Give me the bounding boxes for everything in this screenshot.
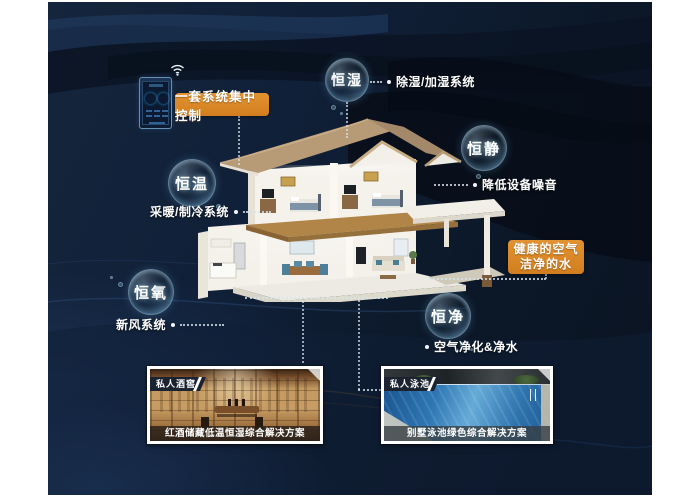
healthy-air-line1: 健康的空气: [513, 242, 578, 257]
connector-healthy-badge-h: [430, 278, 546, 280]
connector-house-to-pool-photo: [358, 297, 360, 390]
thermostat-dial-right: [158, 93, 169, 104]
bubble-temperature-label: 恒温: [175, 173, 209, 194]
wine-cellar-photo: 私人酒窖 红酒储藏低温恒湿综合解决方案: [147, 366, 323, 444]
bubble-temperature: 恒温: [168, 159, 216, 207]
connector-dot: [425, 345, 429, 349]
connector-dot: [387, 80, 391, 84]
mini-bubble: [340, 112, 343, 115]
bubble-oxygen-label: 恒氧: [134, 282, 168, 303]
connector-dot: [171, 323, 175, 327]
smart-home-infographic: 一套系统集中控制 健康的空气 洁净的水 恒湿 恒静 恒温 恒氧 恒净 除湿/加湿…: [48, 2, 652, 495]
callout-purity-system: 空气净化&净水: [420, 338, 518, 355]
central-control-badge-label: 一套系统集中控制: [175, 86, 269, 124]
bubble-humidity-label: 恒湿: [331, 70, 363, 90]
corner-fold: [538, 369, 550, 381]
callout-humidity-system: 除湿/加湿系统: [370, 73, 475, 90]
house-upper-floor: [246, 159, 458, 242]
pool-photo: 私人泳池 别墅泳池绿色综合解决方案: [381, 366, 553, 444]
pool-photo-caption: 别墅泳池绿色综合解决方案: [384, 426, 550, 441]
connector-house-to-wine-photo: [302, 297, 304, 363]
callout-temperature-text: 采暖/制冷系统: [150, 203, 229, 220]
healthy-air-line2: 洁净的水: [520, 257, 572, 272]
bubble-quiet: 恒静: [461, 125, 507, 171]
bubble-quiet-label: 恒静: [467, 138, 501, 159]
callout-quiet-text: 降低设备噪音: [482, 176, 557, 193]
callout-temperature-system: 采暖/制冷系统: [150, 203, 271, 220]
phone-screen: [142, 81, 169, 125]
healthy-air-badge: 健康的空气 洁净的水: [508, 240, 584, 274]
bubble-purity: 恒净: [425, 293, 471, 339]
mini-bubble: [110, 276, 113, 279]
callout-quiet-system: 降低设备噪音: [434, 176, 557, 193]
connector-to-pool-photo: [358, 389, 381, 391]
connector-under-house: [245, 297, 388, 299]
callout-purity-text: 空气净化&净水: [434, 338, 518, 355]
bubble-humidity: 恒湿: [325, 58, 369, 102]
bubble-oxygen: 恒氧: [128, 269, 174, 315]
callout-humidity-text: 除湿/加湿系统: [396, 73, 475, 90]
mini-bubble: [118, 282, 123, 287]
connector-dot: [473, 183, 477, 187]
wine-photo-caption: 红酒储藏低温恒湿综合解决方案: [150, 426, 320, 441]
callout-oxygen-system: 新风系统: [116, 316, 224, 333]
callout-oxygen-text: 新风系统: [116, 316, 166, 333]
corner-fold: [308, 369, 320, 381]
smart-controller-phone: [139, 77, 172, 129]
bubble-purity-label: 恒净: [431, 306, 465, 327]
poster-page: 一套系统集中控制 健康的空气 洁净的水 恒湿 恒静 恒温 恒氧 恒净 除湿/加湿…: [0, 0, 700, 497]
central-control-badge: 一套系统集中控制: [175, 93, 269, 116]
connector-dot: [234, 210, 238, 214]
connector-humidity-to-roof: [346, 102, 348, 138]
mini-bubble: [331, 105, 336, 110]
thermostat-dial-left: [145, 93, 156, 104]
wifi-icon: [170, 62, 185, 76]
